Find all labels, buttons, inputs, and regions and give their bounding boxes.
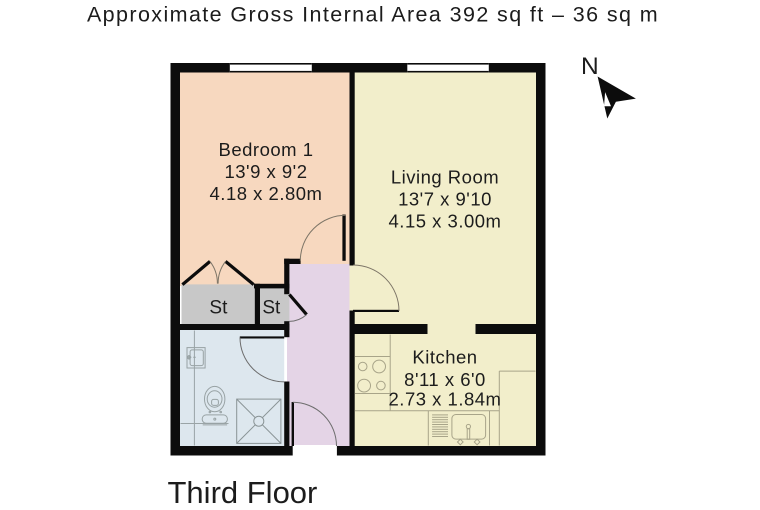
svg-text:Approximate Gross Internal Are: Approximate Gross Internal Area 392 sq f…: [87, 3, 659, 27]
svg-text:Living Room: Living Room: [391, 167, 499, 188]
svg-text:13'7 x 9'10: 13'7 x 9'10: [398, 189, 492, 210]
svg-text:Third Floor: Third Floor: [168, 475, 318, 510]
svg-text:4.15 x 3.00m: 4.15 x 3.00m: [389, 211, 502, 232]
svg-text:Kitchen: Kitchen: [412, 347, 477, 368]
svg-text:N: N: [581, 53, 599, 80]
svg-text:8'11 x 6'0: 8'11 x 6'0: [404, 369, 486, 390]
svg-text:2.73 x 1.84m: 2.73 x 1.84m: [389, 389, 502, 410]
svg-text:St: St: [209, 298, 228, 319]
svg-text:4.18 x 2.80m: 4.18 x 2.80m: [210, 183, 323, 204]
svg-text:St: St: [262, 298, 281, 319]
svg-text:13'9 x 9'2: 13'9 x 9'2: [224, 161, 307, 182]
svg-text:Bedroom 1: Bedroom 1: [219, 139, 314, 160]
